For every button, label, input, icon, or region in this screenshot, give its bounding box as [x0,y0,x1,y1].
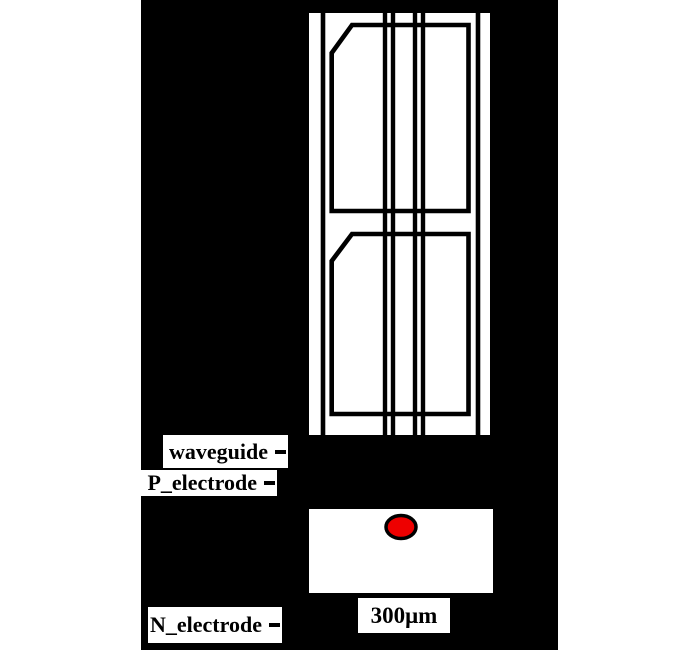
n-electrode-label: N_electrode [148,607,282,643]
waveguide-leader-dash [275,450,286,454]
scale-label-text: 300μm [371,603,438,629]
figure-canvas: waveguide P_electrode N_electrode 300μm [0,0,700,650]
waveguide-label: waveguide [163,435,288,468]
p-electrode-label: P_electrode [137,470,277,496]
scale-label: 300μm [358,598,450,633]
chip-top-view [309,13,490,435]
p-electrode-pad-lower [332,234,469,414]
chip-facet-view [309,509,493,593]
laser-emission-spot [386,516,416,539]
n-electrode-leader-dash [269,623,280,627]
p-electrode-leader-dash [264,481,275,485]
waveguide-label-text: waveguide [169,441,268,463]
facet-view-drawing [309,509,493,593]
p-electrode-pad-upper [332,25,469,211]
chip-top-view-drawing [309,13,490,435]
p-electrode-label-text: P_electrode [147,472,257,494]
n-electrode-label-text: N_electrode [150,614,262,636]
